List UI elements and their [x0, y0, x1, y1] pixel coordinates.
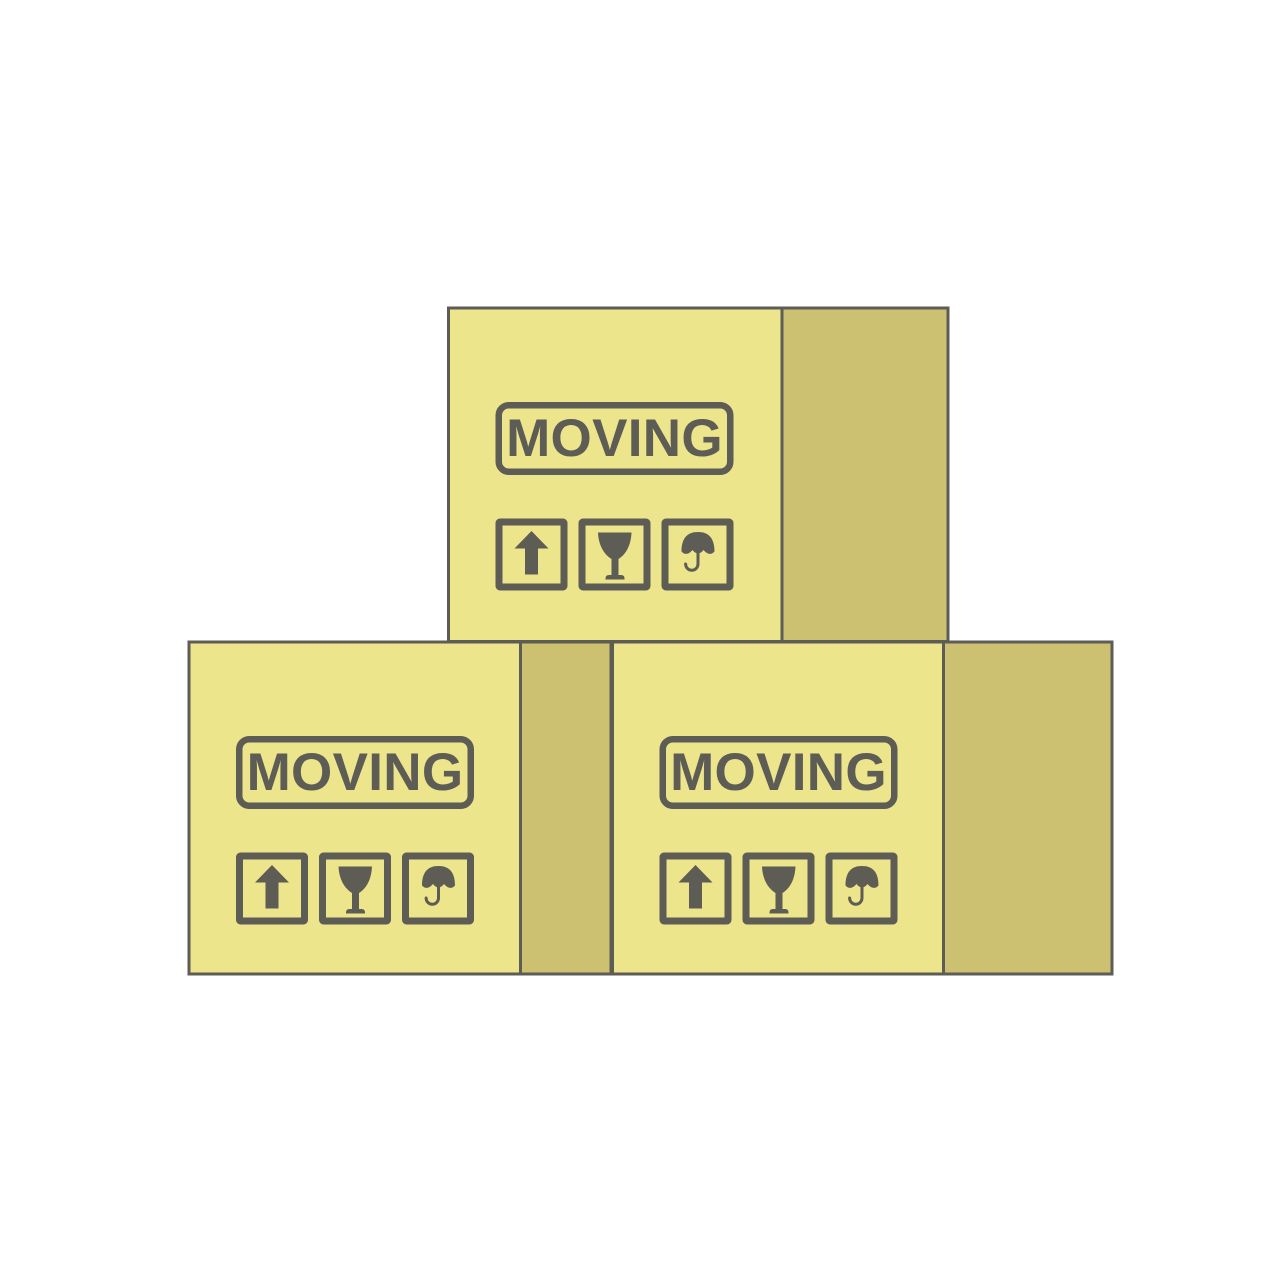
- svg-text:MOVING: MOVING: [247, 743, 464, 802]
- svg-text:MOVING: MOVING: [670, 743, 887, 802]
- svg-text:MOVING: MOVING: [506, 409, 723, 468]
